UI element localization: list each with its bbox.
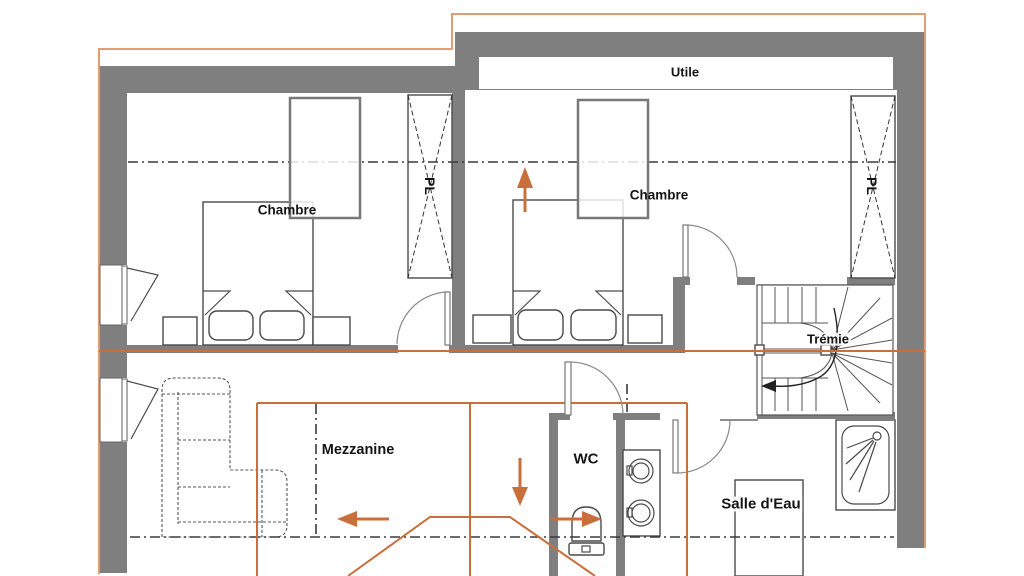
label-wc: WC (574, 452, 599, 467)
door-wc (565, 362, 623, 415)
door-chambre-right (683, 225, 737, 277)
nightstand (313, 317, 350, 345)
window-left-1 (100, 265, 158, 325)
bed-right (473, 200, 662, 345)
washer-stack (623, 450, 660, 536)
floor-plan: Utile Chambre Chambre PL PL Trémie Mezza… (0, 0, 1024, 576)
window-left-2 (100, 378, 158, 442)
nightstand (628, 315, 662, 343)
door-chambre-left (397, 292, 450, 345)
vanity (735, 480, 803, 576)
label-mezzanine: Mezzanine (322, 443, 395, 458)
label-tremie: Trémie (805, 333, 851, 346)
label-pl-left: PL (423, 177, 437, 195)
label-salle-eau: Salle d'Eau (719, 497, 802, 512)
label-chambre-right: Chambre (630, 188, 689, 202)
nightstand (163, 317, 197, 345)
flow-arrow-left (337, 511, 389, 527)
door-salle-eau (673, 420, 730, 473)
floor-plan-drawing (0, 0, 1024, 576)
velux-left (290, 98, 360, 218)
bed-left (163, 202, 350, 345)
nightstand (473, 315, 511, 343)
sofa (162, 378, 287, 537)
label-utile: Utile (671, 66, 699, 79)
label-pl-right: PL (865, 177, 879, 195)
flow-arrow-down (512, 458, 528, 506)
shower (836, 420, 895, 510)
label-chambre-left: Chambre (258, 203, 317, 217)
